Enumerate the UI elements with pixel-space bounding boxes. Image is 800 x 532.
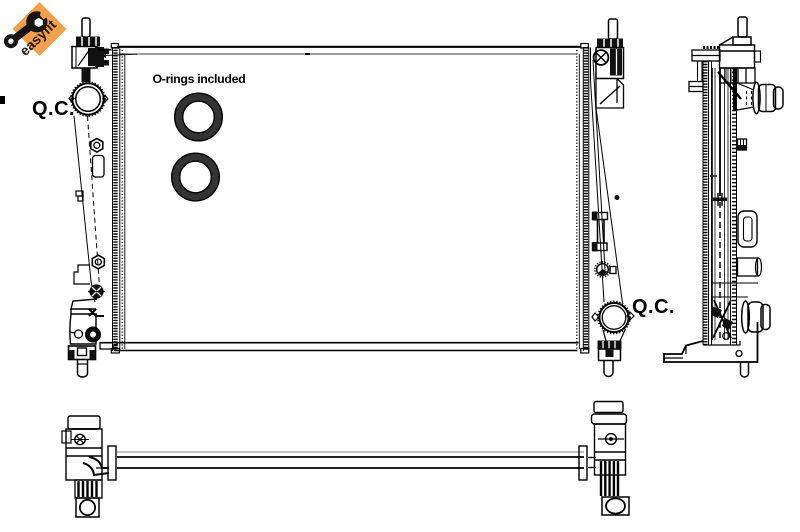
svg-text:Q.C.: Q.C. [632, 296, 675, 318]
svg-text:O-rings included: O-rings included [153, 72, 246, 86]
svg-text:Q.C.: Q.C. [32, 98, 75, 120]
